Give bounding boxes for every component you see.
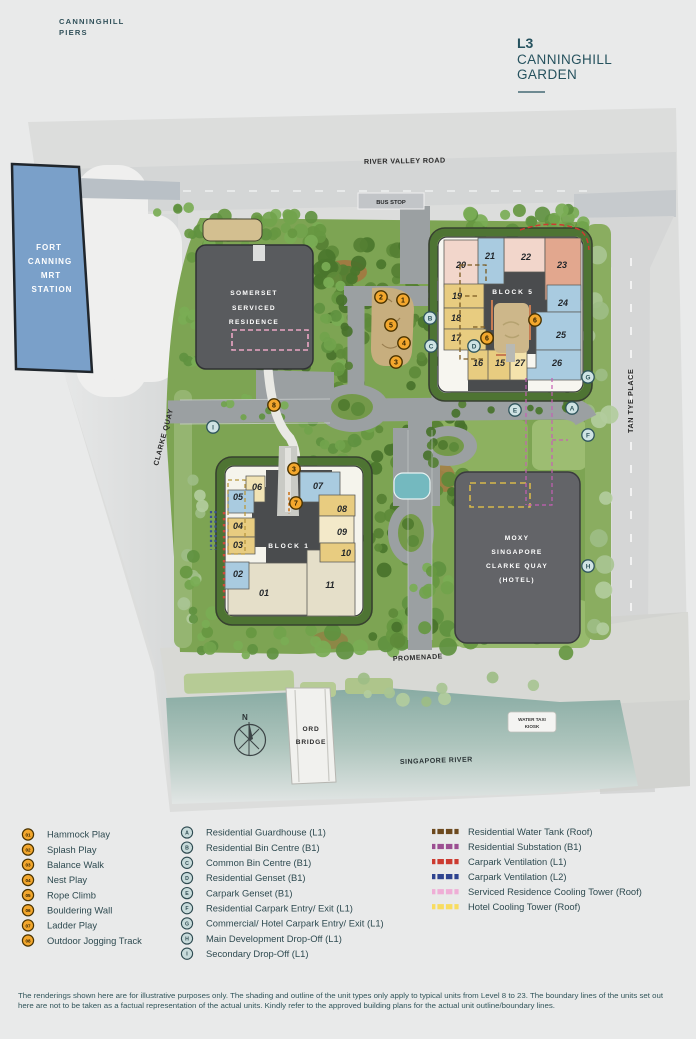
svg-text:6: 6 bbox=[485, 336, 489, 343]
svg-text:23: 23 bbox=[556, 260, 567, 270]
svg-text:10: 10 bbox=[341, 548, 351, 558]
svg-text:C: C bbox=[185, 861, 189, 867]
svg-text:Balance Walk: Balance Walk bbox=[47, 859, 104, 870]
svg-text:09: 09 bbox=[337, 527, 347, 537]
svg-text:Carpark Ventilation (L2): Carpark Ventilation (L2) bbox=[468, 871, 567, 882]
svg-text:STATION: STATION bbox=[32, 285, 73, 294]
svg-text:F: F bbox=[586, 432, 590, 439]
svg-text:C: C bbox=[429, 343, 434, 350]
svg-text:01: 01 bbox=[259, 588, 269, 598]
svg-text:Hotel Cooling Tower (Roof): Hotel Cooling Tower (Roof) bbox=[468, 901, 580, 912]
svg-text:RIVER VALLEY ROAD: RIVER VALLEY ROAD bbox=[364, 156, 446, 166]
svg-text:CANNINGHILL: CANNINGHILL bbox=[59, 17, 125, 26]
svg-text:08: 08 bbox=[337, 504, 347, 514]
svg-text:4: 4 bbox=[402, 341, 406, 348]
svg-text:15: 15 bbox=[495, 358, 506, 368]
svg-text:7: 7 bbox=[294, 501, 298, 508]
svg-text:Residential Water Tank (Roof): Residential Water Tank (Roof) bbox=[468, 826, 593, 837]
svg-text:Commercial/ Hotel Carpark Entr: Commercial/ Hotel Carpark Entry/ Exit (L… bbox=[206, 918, 384, 929]
svg-text:RESIDENCE: RESIDENCE bbox=[229, 319, 279, 326]
svg-text:TAN TYE PLACE: TAN TYE PLACE bbox=[626, 369, 635, 433]
svg-text:CANNING: CANNING bbox=[28, 257, 72, 266]
svg-text:Rope Climb: Rope Climb bbox=[47, 889, 96, 900]
svg-text:KIOSK: KIOSK bbox=[525, 724, 540, 729]
svg-text:Common Bin Centre (B1): Common Bin Centre (B1) bbox=[206, 857, 311, 868]
svg-text:MRT: MRT bbox=[41, 271, 61, 280]
svg-text:PIERS: PIERS bbox=[59, 28, 88, 37]
svg-text:Hammock Play: Hammock Play bbox=[47, 829, 110, 840]
svg-text:03: 03 bbox=[25, 863, 31, 868]
svg-text:Serviced Residence Cooling Tow: Serviced Residence Cooling Tower (Roof) bbox=[468, 886, 642, 897]
svg-text:SINGAPORE: SINGAPORE bbox=[491, 549, 542, 556]
svg-text:G: G bbox=[185, 921, 189, 927]
svg-text:D: D bbox=[472, 343, 477, 350]
svg-text:Bouldering Wall: Bouldering Wall bbox=[47, 905, 112, 916]
svg-text:06: 06 bbox=[25, 908, 31, 913]
svg-text:G: G bbox=[586, 374, 591, 381]
svg-text:BLOCK 1: BLOCK 1 bbox=[268, 543, 310, 550]
svg-text:3: 3 bbox=[292, 467, 296, 474]
svg-text:2: 2 bbox=[379, 295, 383, 302]
svg-text:08: 08 bbox=[25, 938, 31, 943]
svg-text:Residential Genset (B1): Residential Genset (B1) bbox=[206, 872, 306, 883]
svg-text:04: 04 bbox=[25, 878, 31, 883]
svg-text:02: 02 bbox=[233, 569, 243, 579]
svg-text:CANNINGHILL: CANNINGHILL bbox=[517, 52, 612, 67]
svg-text:D: D bbox=[185, 876, 189, 882]
svg-text:6: 6 bbox=[533, 318, 537, 325]
svg-text:5: 5 bbox=[389, 323, 393, 330]
svg-text:26: 26 bbox=[551, 358, 563, 368]
svg-text:Carpark Genset (B1): Carpark Genset (B1) bbox=[206, 887, 293, 898]
svg-text:Carpark Ventilation (L1): Carpark Ventilation (L1) bbox=[468, 856, 567, 867]
svg-text:1: 1 bbox=[401, 298, 405, 305]
svg-text:I: I bbox=[212, 424, 214, 431]
svg-text:Nest Play: Nest Play bbox=[47, 874, 87, 885]
svg-text:A: A bbox=[185, 831, 189, 837]
svg-text:SERVICED: SERVICED bbox=[232, 305, 276, 312]
svg-text:B: B bbox=[185, 846, 189, 852]
svg-text:05: 05 bbox=[25, 893, 31, 898]
svg-text:The renderings shown here are: The renderings shown here are for illust… bbox=[18, 993, 663, 1000]
svg-text:07: 07 bbox=[313, 481, 324, 491]
svg-text:H: H bbox=[185, 937, 189, 943]
svg-text:CLARKE QUAY: CLARKE QUAY bbox=[486, 563, 548, 570]
svg-text:ORD: ORD bbox=[302, 726, 319, 733]
svg-text:02: 02 bbox=[25, 848, 31, 853]
svg-text:3: 3 bbox=[394, 360, 398, 367]
svg-text:Secondary Drop-Off (L1): Secondary Drop-Off (L1) bbox=[206, 948, 308, 959]
svg-text:25: 25 bbox=[555, 330, 567, 340]
svg-text:L3: L3 bbox=[517, 35, 534, 51]
svg-text:F: F bbox=[185, 906, 188, 912]
svg-text:E: E bbox=[185, 891, 189, 897]
svg-text:N: N bbox=[242, 713, 248, 722]
svg-text:MOXY: MOXY bbox=[505, 535, 530, 542]
svg-text:Splash Play: Splash Play bbox=[47, 844, 97, 855]
svg-text:BUS STOP: BUS STOP bbox=[376, 200, 406, 206]
svg-text:SOMERSET: SOMERSET bbox=[230, 290, 277, 297]
svg-text:here are not to be taken as a: here are not to be taken as a factual re… bbox=[18, 1003, 555, 1010]
svg-text:8: 8 bbox=[272, 403, 276, 410]
svg-text:(HOTEL): (HOTEL) bbox=[499, 577, 535, 584]
svg-text:Residential Bin Centre (B1): Residential Bin Centre (B1) bbox=[206, 842, 320, 853]
svg-text:BRIDGE: BRIDGE bbox=[296, 739, 326, 746]
svg-text:WATER TAXI: WATER TAXI bbox=[518, 717, 546, 722]
svg-text:BLOCK 5: BLOCK 5 bbox=[492, 289, 534, 296]
svg-text:Residential Guardhouse (L1): Residential Guardhouse (L1) bbox=[206, 827, 326, 838]
svg-text:01: 01 bbox=[25, 832, 31, 837]
svg-text:A: A bbox=[570, 405, 575, 412]
svg-text:FORT: FORT bbox=[36, 243, 62, 252]
svg-text:E: E bbox=[513, 407, 518, 414]
svg-text:H: H bbox=[586, 563, 591, 570]
svg-text:27: 27 bbox=[514, 358, 526, 368]
svg-text:05: 05 bbox=[233, 492, 244, 502]
svg-text:07: 07 bbox=[25, 923, 31, 928]
svg-text:03: 03 bbox=[233, 540, 243, 550]
svg-text:11: 11 bbox=[325, 580, 334, 590]
svg-text:Ladder Play: Ladder Play bbox=[47, 920, 97, 931]
svg-text:Outdoor Jogging Track: Outdoor Jogging Track bbox=[47, 935, 142, 946]
svg-text:Main Development Drop-Off (L1): Main Development Drop-Off (L1) bbox=[206, 933, 342, 944]
svg-text:24: 24 bbox=[557, 298, 568, 308]
svg-text:21: 21 bbox=[484, 251, 495, 261]
svg-text:22: 22 bbox=[520, 252, 531, 262]
svg-text:04: 04 bbox=[233, 521, 243, 531]
svg-text:Residential Substation (B1): Residential Substation (B1) bbox=[468, 841, 582, 852]
svg-text:Residential Carpark Entry/ Exi: Residential Carpark Entry/ Exit (L1) bbox=[206, 903, 353, 914]
svg-text:B: B bbox=[428, 315, 433, 322]
svg-text:GARDEN: GARDEN bbox=[517, 67, 577, 82]
